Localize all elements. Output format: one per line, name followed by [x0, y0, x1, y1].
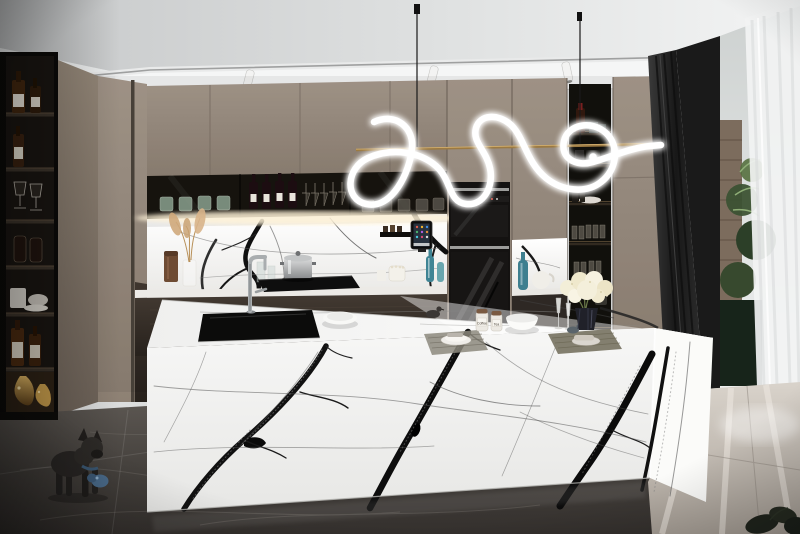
vignette: [0, 0, 800, 534]
kitchen-scene: Coffee Tea: [0, 0, 800, 534]
